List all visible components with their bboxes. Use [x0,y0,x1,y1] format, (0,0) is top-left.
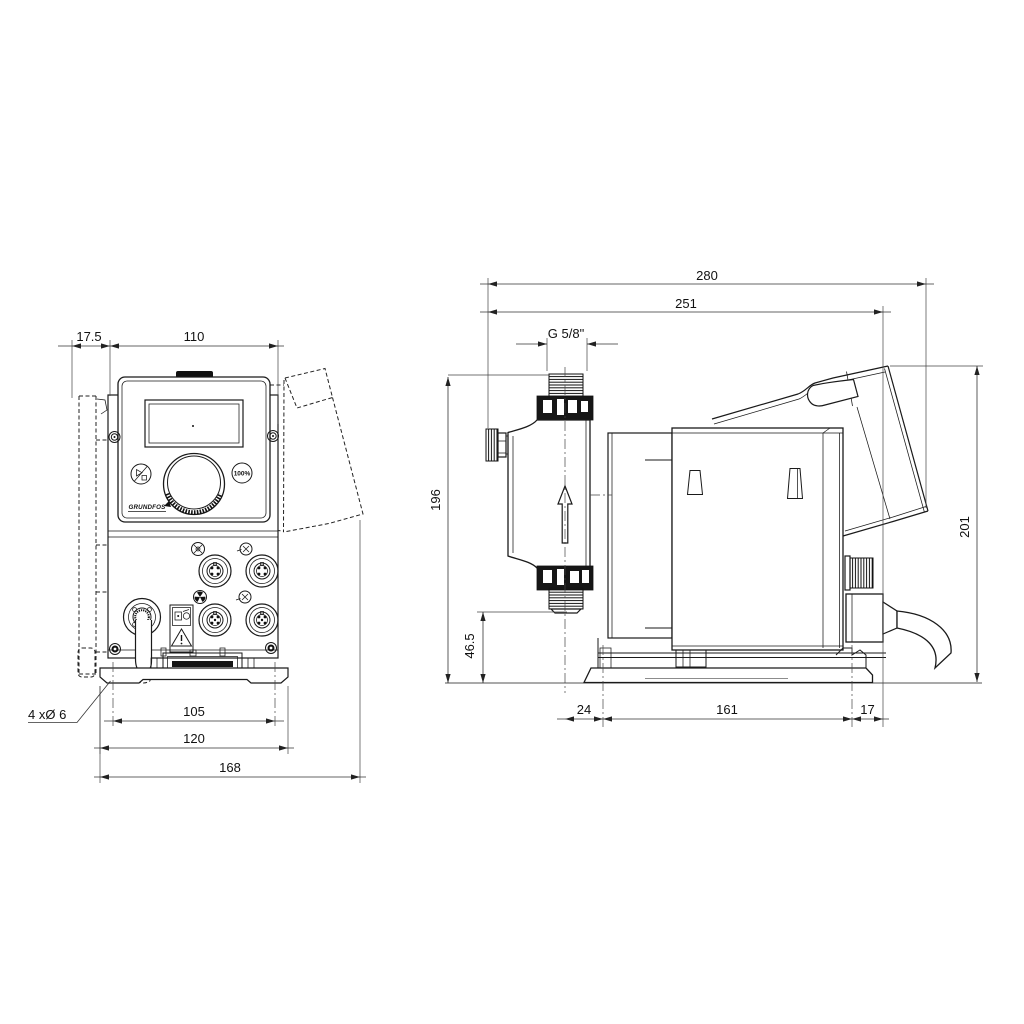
mounting-plate-side [584,668,873,683]
label-mounting-holes: 4 xØ 6 [28,707,66,722]
dim-overall-width: 168 [219,760,241,775]
suction-valve-thread [549,588,583,609]
rear-connector-stub [845,556,873,590]
svg-text:GRUNDFOS: GRUNDFOS [128,504,166,511]
discharge-valve-thread [549,374,583,397]
power-cable-front [136,620,152,672]
control-panel: 100% GRUNDFOS [118,371,270,522]
dim-base-front-offset: 24 [577,702,591,717]
dim-valve-height: 46.5 [462,633,477,658]
click-wheel-knob [164,454,225,515]
dim-height: 196 [428,489,443,511]
deaeration-vent-knob [486,429,508,461]
dim-wall-offset: 17.5 [76,329,101,344]
dim-overall-height: 201 [957,516,972,538]
dim-depth-to-cube: 251 [675,296,697,311]
dim-hole-spacing: 105 [183,704,205,719]
max-capacity-label: 100% [234,471,251,478]
pump-body [672,428,843,650]
dim-base-rear-offset: 17 [860,702,874,717]
dim-base-hole-spacing: 161 [716,702,738,717]
dim-plate-width: 120 [183,731,205,746]
dim-housing-width: 110 [184,329,205,344]
display-dot [192,425,194,427]
motor-section [608,433,672,638]
dim-overall-depth: 280 [696,268,718,283]
dim-thread-connection: G 5/8" [548,326,585,341]
pump-dimensional-drawing: 100% GRUNDFOS [0,0,1024,1024]
